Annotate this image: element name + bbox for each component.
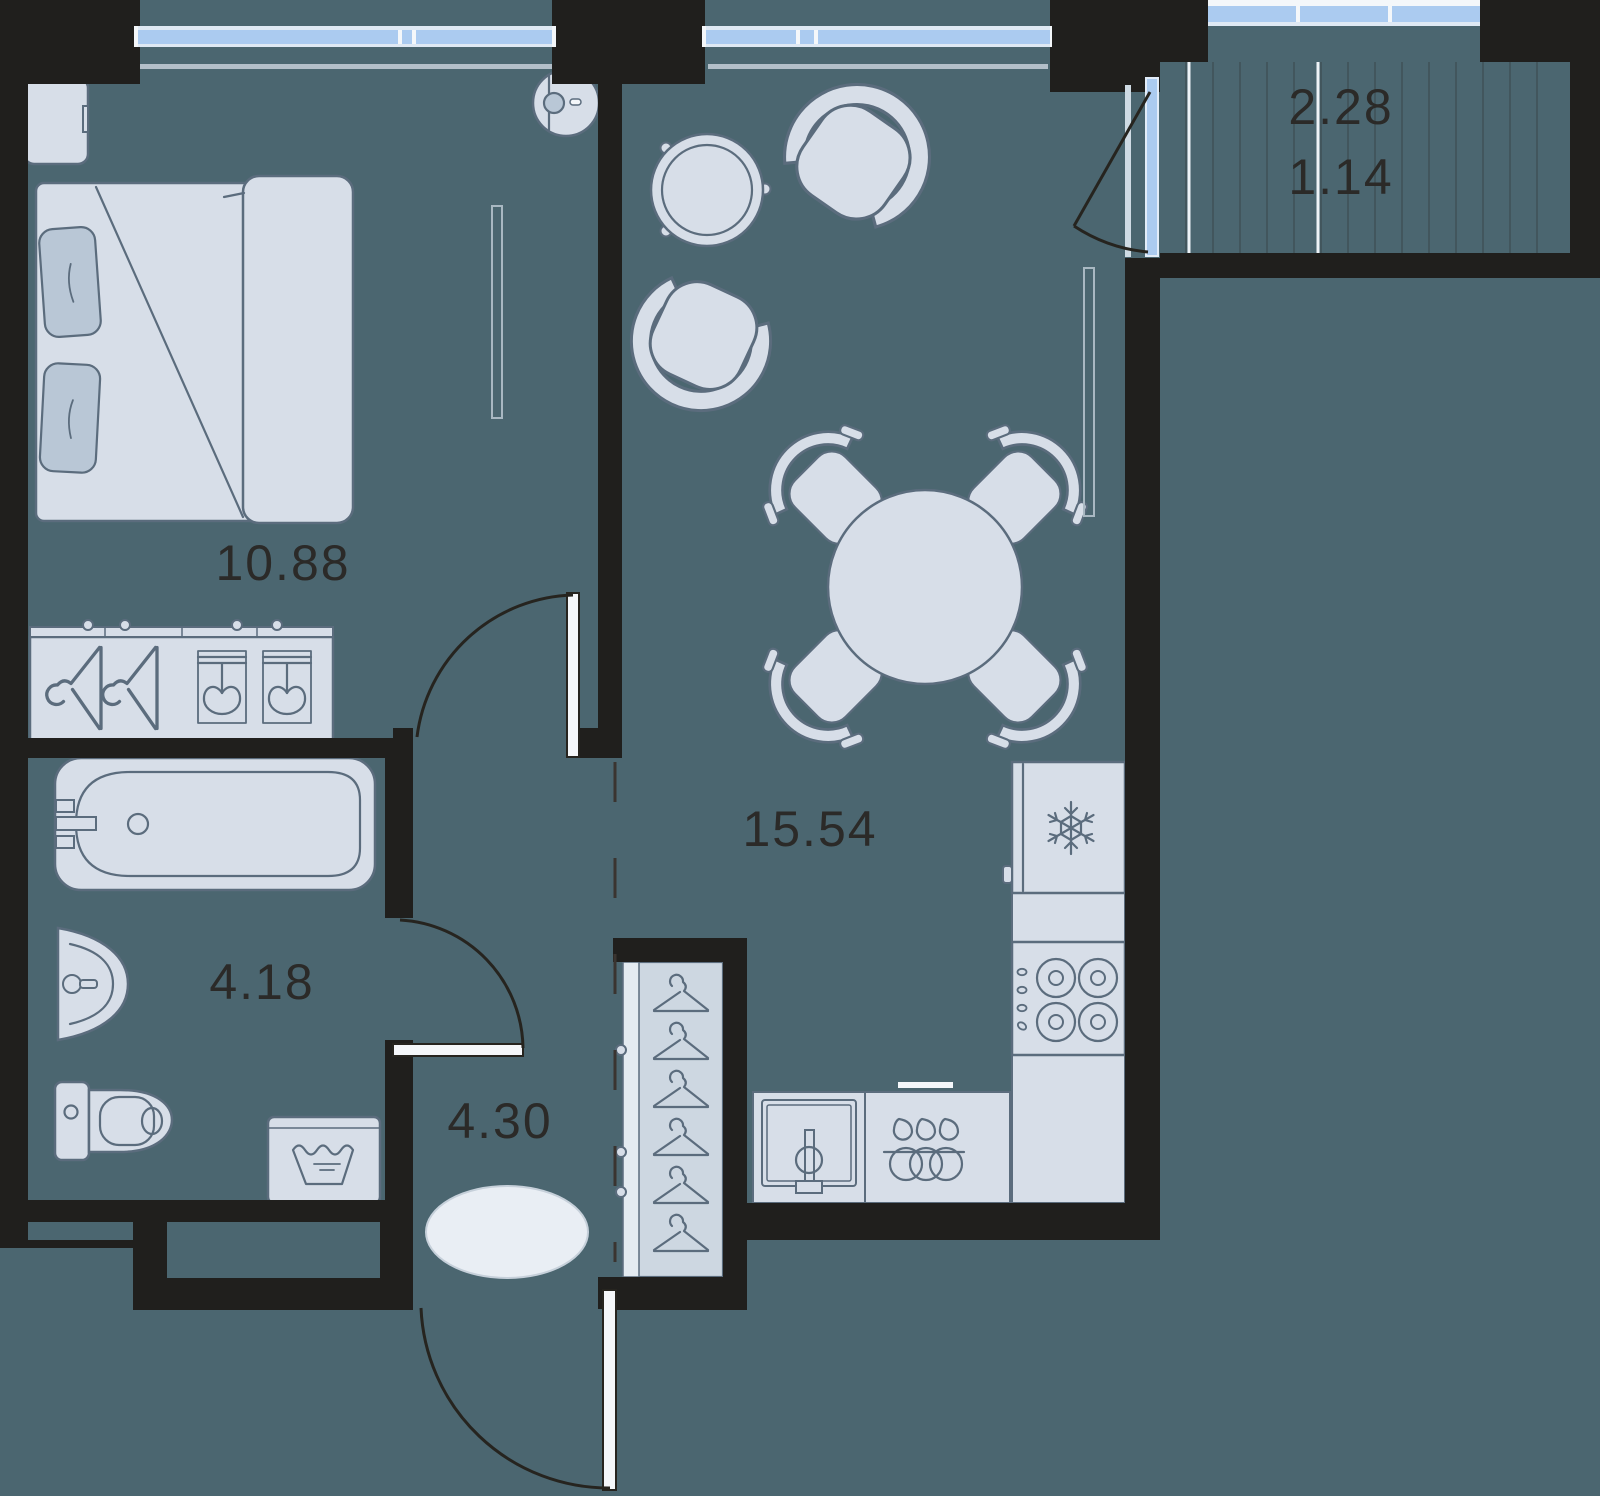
balcony-glazing xyxy=(1208,0,1480,26)
basin-faucet xyxy=(63,975,81,993)
bathtub xyxy=(55,758,375,890)
double-bed xyxy=(36,176,353,523)
bedroom-area-label: 10.88 xyxy=(215,535,350,591)
window-sill xyxy=(140,64,552,69)
knob xyxy=(616,1045,626,1055)
bathroom-area-label: 4.18 xyxy=(209,954,314,1010)
living-kitchen-area-label: 15.54 xyxy=(742,801,877,857)
hob xyxy=(1012,942,1125,1055)
round-dining-table xyxy=(828,490,1022,684)
corner-counter xyxy=(1012,1055,1125,1203)
knob xyxy=(120,620,130,630)
knob xyxy=(232,620,242,630)
washing-machine xyxy=(268,1117,380,1203)
kitchen-sink-cabinet xyxy=(753,1092,865,1203)
knob xyxy=(83,620,93,630)
hall-closet xyxy=(616,962,723,1277)
faucet xyxy=(805,1130,814,1188)
rug xyxy=(426,1186,588,1278)
counter-edge-highlight xyxy=(898,1082,953,1088)
fridge xyxy=(1003,762,1125,893)
balcony-area-total-label: 2.28 xyxy=(1288,79,1393,135)
tub-faucet xyxy=(56,800,74,812)
balcony-area-reduced-label: 1.14 xyxy=(1288,149,1393,205)
floor-plan-canvas: 10.88 15.54 4.18 4.30 2.28 1.14 xyxy=(0,0,1600,1496)
floor-plan-page: 10.88 15.54 4.18 4.30 2.28 1.14 xyxy=(0,0,1600,1496)
nightstand xyxy=(24,78,88,164)
window-sill xyxy=(708,64,1048,69)
knob xyxy=(272,620,282,630)
pillow xyxy=(38,226,101,338)
dishwasher xyxy=(865,1092,1010,1203)
hallway-area-label: 4.30 xyxy=(447,1093,552,1149)
knob xyxy=(616,1187,626,1197)
pillow xyxy=(39,363,101,474)
knob xyxy=(616,1147,626,1157)
bedroom-wardrobe xyxy=(30,620,333,740)
counter xyxy=(1012,893,1125,942)
nightstand-handle xyxy=(83,106,88,132)
